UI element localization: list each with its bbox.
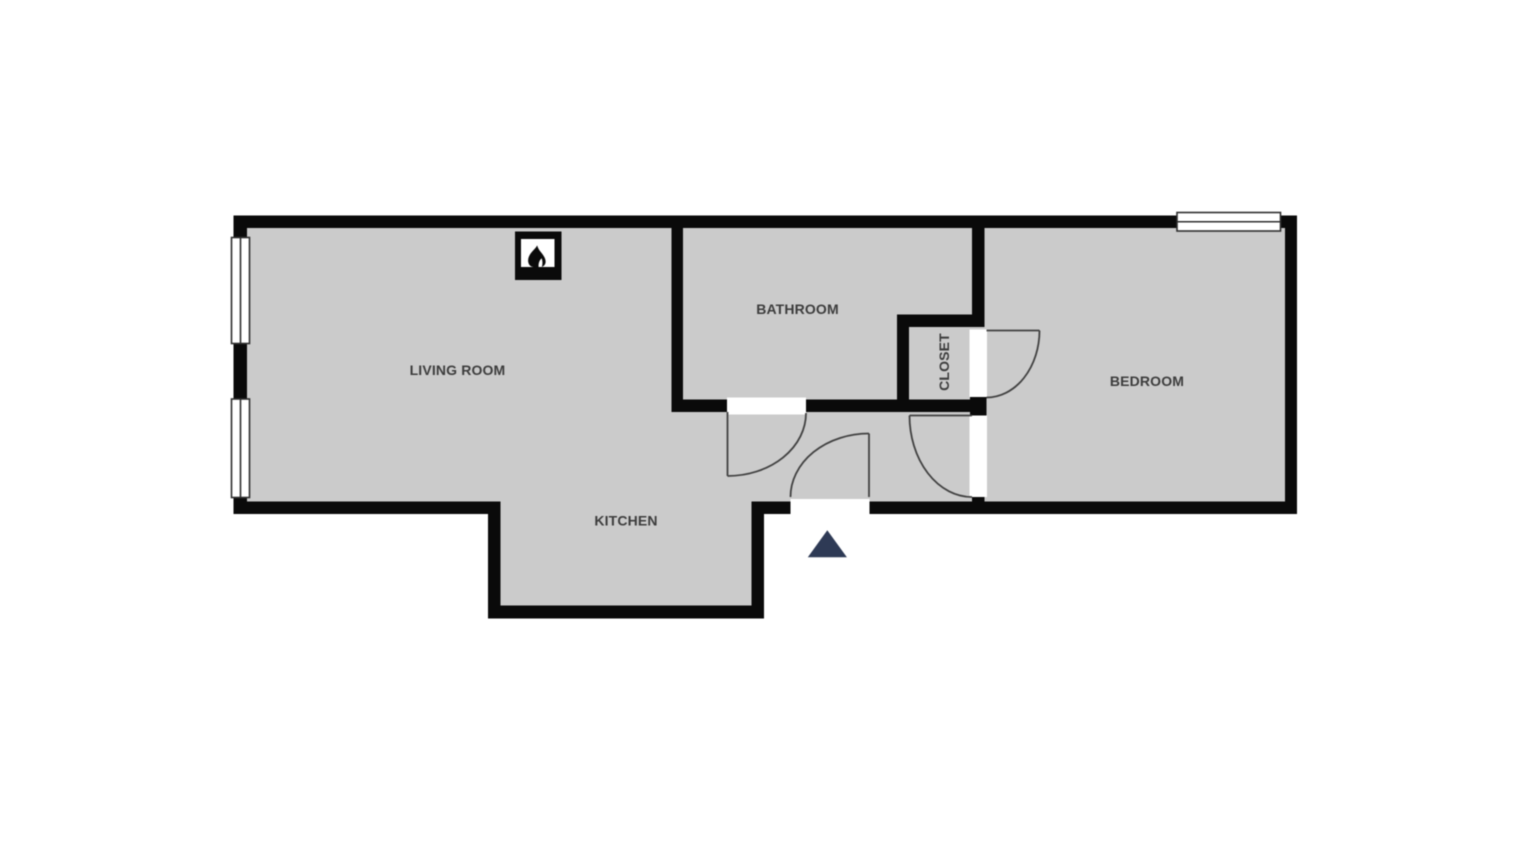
svg-text:CLOSET: CLOSET xyxy=(936,333,952,391)
svg-text:BATHROOM: BATHROOM xyxy=(756,301,839,317)
svg-text:LIVING ROOM: LIVING ROOM xyxy=(410,362,506,378)
svg-text:BEDROOM: BEDROOM xyxy=(1110,373,1184,389)
svg-text:KITCHEN: KITCHEN xyxy=(594,512,657,528)
